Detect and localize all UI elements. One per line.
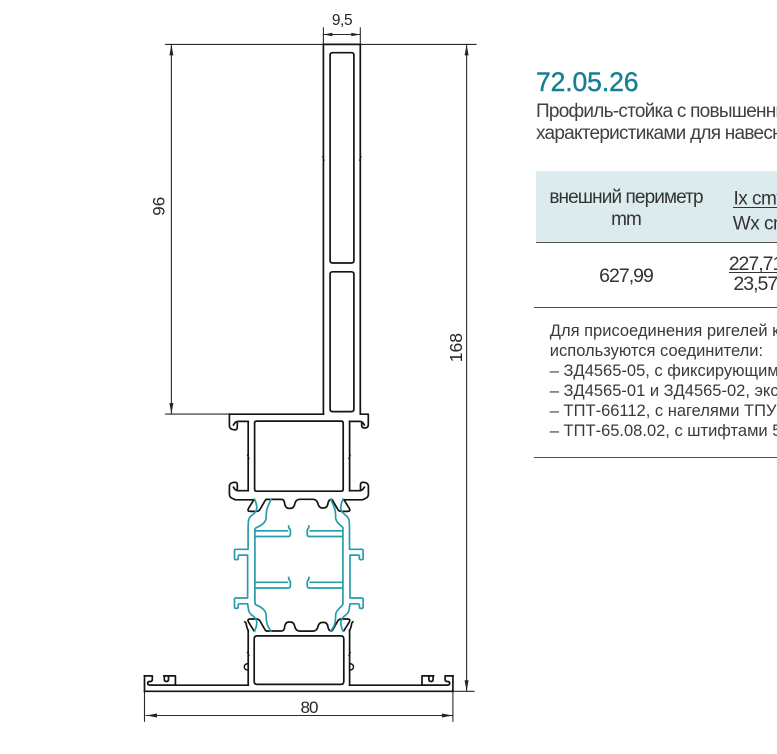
svg-text:80: 80 xyxy=(301,698,318,717)
svg-text:96: 96 xyxy=(150,197,169,216)
svg-text:9,5: 9,5 xyxy=(332,12,352,29)
svg-text:168: 168 xyxy=(446,333,466,362)
